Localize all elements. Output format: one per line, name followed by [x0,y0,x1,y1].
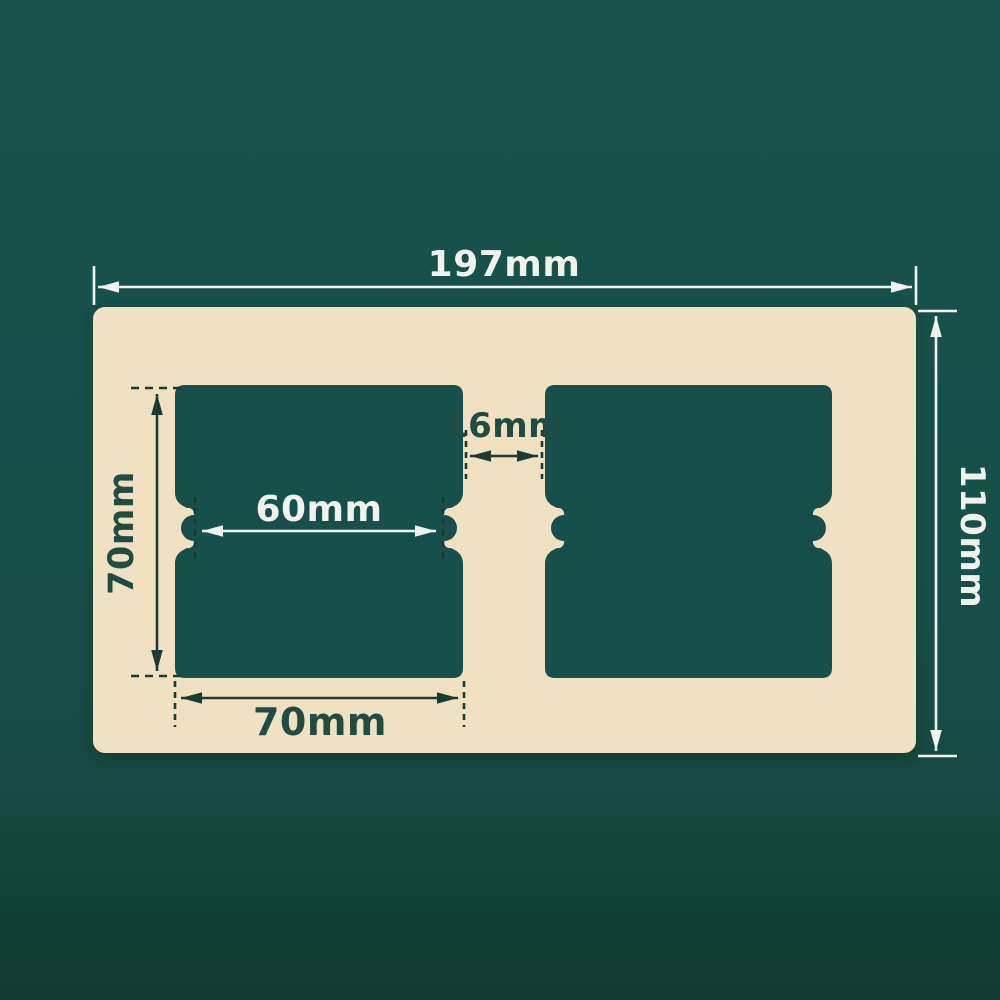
product-dimension-scene: 197mm 110mm 70mm 60mm 16mm [0,0,1000,1000]
dim-notch-span-label: 60mm [255,489,382,530]
dim-overall-height: 110mm [918,311,992,756]
dim-overall-height-label: 110mm [952,464,992,608]
dim-overall-width: 197mm [94,244,916,305]
right-cutout-opening [545,385,832,678]
dim-overall-width-label: 197mm [428,244,581,285]
dimension-diagram: 197mm 110mm 70mm 60mm 16mm [0,0,1000,1000]
dim-cutout-width-label: 70mm [253,700,387,744]
dim-center-gap-label: 16mm [444,406,564,446]
dim-cutout-height-label: 70mm [102,471,142,595]
